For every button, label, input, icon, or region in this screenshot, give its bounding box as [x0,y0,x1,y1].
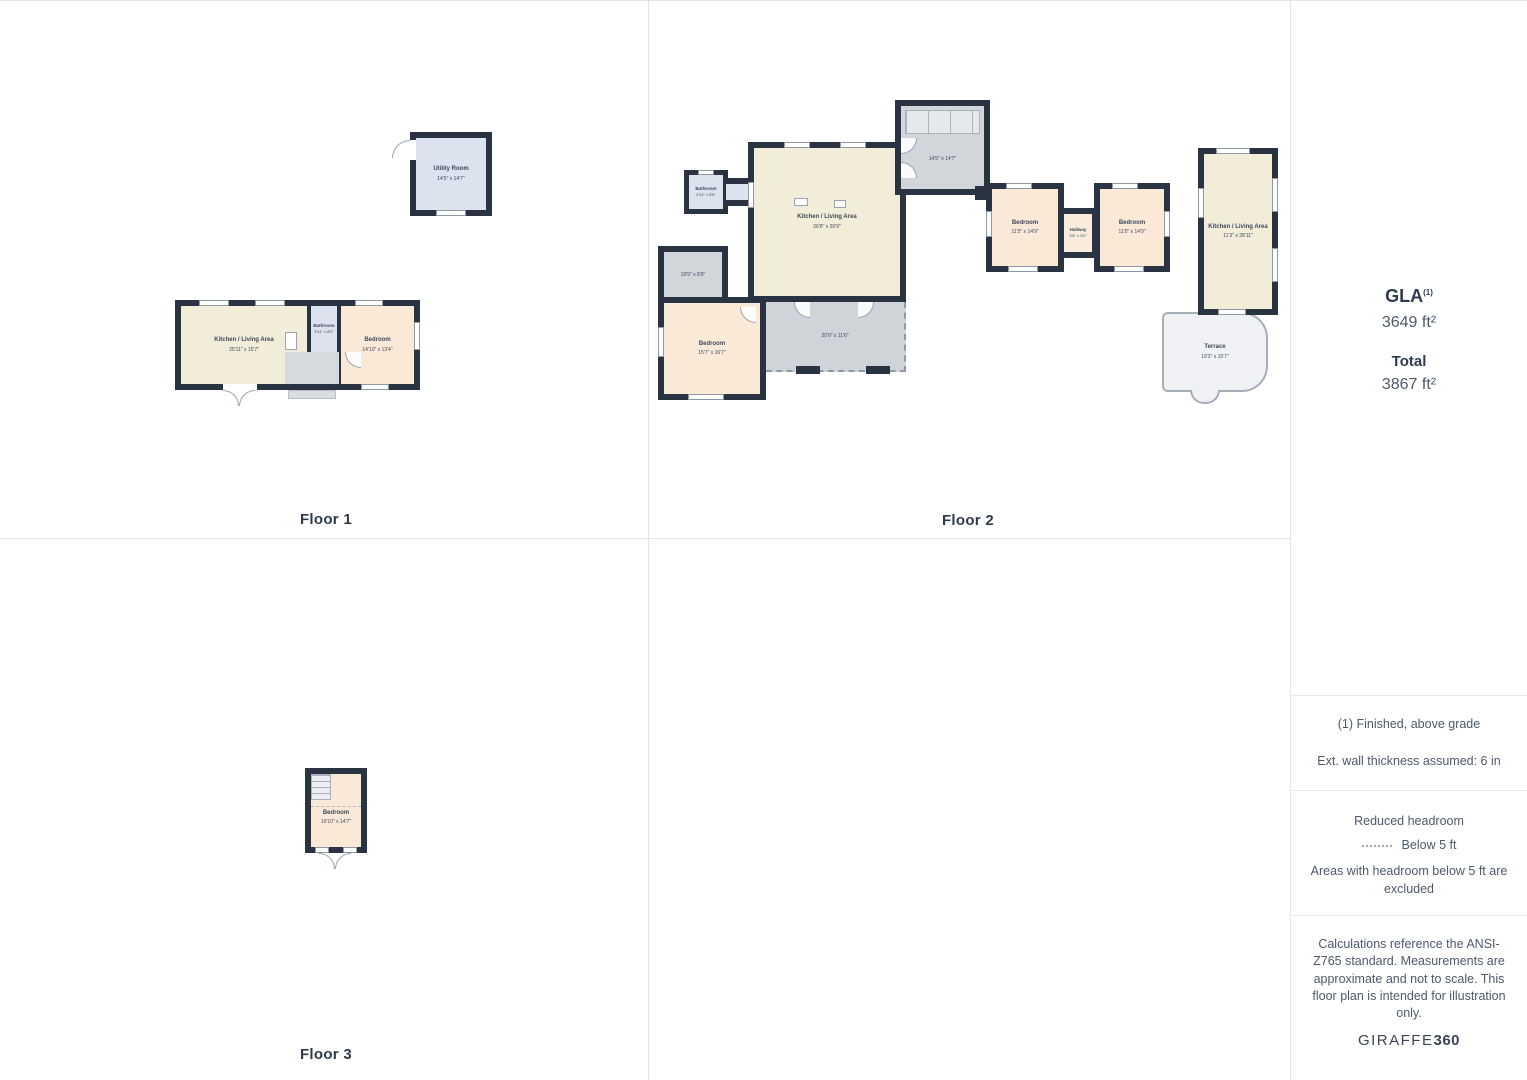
floor2-bathroom-building: Bathroom 5'11" x 5'5" [684,170,728,214]
corridor [726,184,750,200]
floor2-bedroom-w-building: Bedroom 11'5" x 14'9" [986,183,1064,272]
window [199,300,229,306]
headroom-note: Areas with headroom below 5 ft are exclu… [1304,862,1514,898]
total-value: 3867 ft² [1291,376,1527,394]
room-bathroom-floor1: Bathroom 3'11" x 8'2" [311,306,337,352]
floor2-hallway-building: Hallway 3'6" x 3'0" [1058,208,1098,258]
panel-divider-horizontal [0,538,1290,539]
headroom-legend-row: Below 5 ft [1291,838,1527,852]
reduced-headroom-area: 20'9" x 11'6" [766,302,906,372]
window [414,322,420,350]
floor1-utility-building: Utility Room 14'5" x 14'7" [410,132,492,216]
stairs [905,110,980,134]
corridor-connector [726,178,750,206]
room-hallway: Hallway 3'6" x 3'0" [1064,214,1092,252]
note-finished: (1) Finished, above grade [1291,717,1527,731]
room-bathroom-floor2: Bathroom 5'11" x 5'5" [689,175,723,209]
window [355,300,383,306]
window [1272,178,1278,212]
window [840,142,866,148]
floor2-storage-building: 10'5" x 8'9" [658,246,728,303]
room-bedroom-w: Bedroom 11'5" x 14'9" [992,189,1058,266]
window [255,300,285,306]
room-label: Bathroom 5'11" x 5'5" [689,175,723,209]
room-label: Terrace 19'3" x 15'7" [1164,314,1266,390]
room-kitchen-living-e: Kitchen / Living Area 11'3" x 28'11" [1204,154,1272,309]
gla-footnote-marker: (1) [1423,288,1433,297]
window [1198,188,1204,218]
terrace-bump [1190,390,1220,404]
window [1216,148,1250,154]
window [784,142,810,148]
wall-stub [866,366,890,374]
floor3-building: Bedroom 10'10" x 14'7" [305,768,367,853]
window [658,327,664,357]
counter-fixture [285,332,297,350]
door-arc [239,390,255,406]
floor2-stair-building: 14'5" x 14'7" [895,100,990,195]
room-stairs: 14'5" x 14'7" [901,106,984,189]
room-label: Kitchen / Living Area 11'3" x 28'11" [1204,154,1272,309]
room-label: 10'5" x 8'9" [664,252,722,297]
door-opening [410,140,416,160]
counter-fixture [834,200,846,208]
room-storage: 10'5" x 8'9" [664,252,722,297]
floor3-label: Floor 3 [300,1046,352,1063]
room-label: Bathroom 3'11" x 8'2" [311,306,337,352]
window [688,394,724,400]
room-label: Hallway 3'6" x 3'0" [1064,214,1092,252]
entry-area [285,352,339,384]
dashed-line-legend-icon [1362,845,1392,847]
window [436,210,466,216]
room-bedroom-e: Bedroom 11'5" x 14'9" [1100,189,1164,266]
window [1006,183,1032,189]
window [1164,211,1170,237]
window [1114,266,1144,272]
door-arc [335,853,351,869]
floor2-kitchen-building: Kitchen / Living Area 26'8" x 26'9" [748,142,906,302]
headroom-title: Reduced headroom [1291,814,1527,828]
window [1008,266,1038,272]
terrace-area: Terrace 19'3" x 15'7" [1162,312,1268,392]
total-title: Total [1291,353,1527,370]
summary-sidebar: GLA(1) 3649 ft² Total 3867 ft² (1) Finis… [1291,0,1527,1080]
wall-stub [796,366,820,374]
porch-step [288,390,336,399]
window [748,182,754,208]
floor1-label: Floor 1 [300,511,352,528]
floor2-bedroom-e-building: Bedroom 11'5" x 14'9" [1094,183,1170,272]
door-arc [223,390,239,406]
window [1218,309,1246,315]
floorplan-page: Utility Room 14'5" x 14'7" Kitchen / Liv… [0,0,1527,1080]
gla-title: GLA(1) [1291,286,1527,307]
floor2-bedroom-sw-building: Bedroom 15'7" x 16'7" [658,297,766,400]
sidebar-divider [1291,695,1527,696]
door-arc [319,853,335,869]
stove-fixture [794,198,808,206]
room-label: Bedroom 14'10" x 13'4" [341,306,414,384]
gla-value: 3649 ft² [1291,314,1527,332]
disclaimer-text: Calculations reference the ANSI-Z765 sta… [1311,936,1507,1022]
area-summary: GLA(1) 3649 ft² Total 3867 ft² [1291,286,1527,394]
window [361,384,389,390]
window [1272,248,1278,282]
giraffe360-logo: GIRAFFE360 [1291,1032,1527,1049]
window [315,847,329,853]
floor2-label: Floor 2 [942,512,994,529]
room-label: Utility Room 14'5" x 14'7" [416,138,486,210]
room-label: Bedroom 11'5" x 14'9" [992,189,1058,266]
door-opening [223,384,257,390]
window [698,170,714,175]
panel-divider-vertical-1 [648,0,649,1080]
stairs [311,774,331,800]
room-kitchen-living-floor2: Kitchen / Living Area 26'8" x 26'9" [754,148,900,296]
door-arc [392,140,410,158]
room-bedroom-floor1: Bedroom 14'10" x 13'4" [341,306,414,384]
headroom-legend-label: Below 5 ft [1402,838,1457,852]
sidebar-divider [1291,790,1527,791]
room-utility: Utility Room 14'5" x 14'7" [416,138,486,210]
sidebar-divider [1291,915,1527,916]
room-bedroom-floor3: Bedroom 10'10" x 14'7" [311,774,361,847]
room-label: 20'9" x 11'6" [766,302,904,370]
room-bedroom-sw: Bedroom 15'7" x 16'7" [664,303,760,394]
window [986,211,992,237]
floor2-kitchen-e-building: Kitchen / Living Area 11'3" x 28'11" [1198,148,1278,315]
room-label: Kitchen / Living Area 26'8" x 26'9" [754,148,900,296]
floor1-main-building: Kitchen / Living Area 25'11" x 15'7" Bat… [175,300,420,390]
room-label: Bedroom 11'5" x 14'9" [1100,189,1164,266]
note-wall-thickness: Ext. wall thickness assumed: 6 in [1291,754,1527,768]
reduced-headroom-line [311,806,361,807]
window [1112,183,1138,189]
